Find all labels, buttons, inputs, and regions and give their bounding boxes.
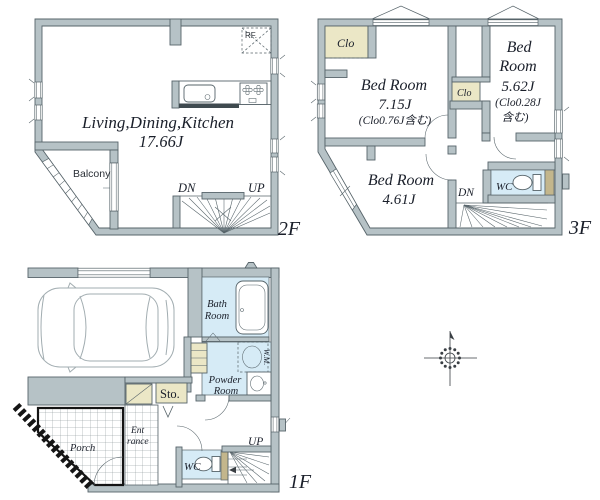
bath-room: Bath Room	[202, 277, 269, 342]
floorplan-sheet: RF.	[0, 0, 600, 500]
closet-b-label: Clo	[457, 88, 471, 99]
wc-label: WC	[184, 461, 201, 473]
wc-label: WC	[496, 181, 513, 193]
storage-label: Sto.	[160, 387, 180, 401]
wall-segment	[482, 133, 490, 141]
toilet-tank	[212, 457, 220, 472]
wall-segment	[488, 162, 555, 170]
wall-segment	[482, 101, 490, 133]
dn-label: DN	[457, 187, 475, 199]
floor-2f-plan: RF.	[29, 19, 301, 240]
side-mirror	[68, 283, 76, 288]
floor-1f-plan: Bath Room W.M. Powder Room Sto	[13, 263, 312, 494]
wall-segment	[110, 211, 118, 229]
wc-cabinet	[221, 451, 228, 480]
roof-gables	[371, 6, 540, 20]
north-arrow	[450, 331, 455, 340]
bedroom1-note: (Clo0.76J含む)	[359, 114, 432, 127]
wall-segment	[176, 447, 182, 487]
wall-segment	[448, 146, 456, 154]
wall-segment	[271, 268, 279, 492]
bath-label-l1: Bath	[207, 299, 227, 310]
wall-segment	[125, 377, 192, 383]
stair-landing	[202, 193, 244, 200]
bedroom2-note-l2: 含む)	[502, 111, 529, 124]
floor-3f-plan: Clo Clo	[311, 6, 592, 239]
bedroom1-area: 7.15J	[379, 97, 413, 113]
bedroom3-name: Bed Room	[368, 172, 434, 189]
up-label: UP	[248, 181, 265, 195]
closet-a-label: Clo	[337, 36, 354, 50]
floor-label-1f: 1F	[289, 471, 312, 493]
ldk-area: 17.66J	[139, 132, 184, 151]
bedroom2-area: 5.62J	[502, 79, 536, 95]
folding-door	[163, 406, 173, 417]
vent-hood	[245, 263, 257, 269]
kitchen-counter	[172, 81, 271, 108]
bathtub	[236, 281, 268, 334]
bedroom3-area: 4.61J	[383, 192, 417, 208]
wall-segment	[325, 138, 425, 146]
ldk-name: Living,Dining,Kitchen	[81, 113, 234, 132]
stove	[240, 83, 267, 105]
wall-segment	[173, 196, 180, 228]
compass	[424, 331, 477, 386]
rf-label: RF.	[245, 31, 257, 40]
balcony-label: Balcony	[73, 168, 111, 180]
wall-segment	[35, 142, 118, 150]
powder-room: W.M. Powder Room	[191, 342, 271, 420]
bedroom2-name-l2: Room	[498, 58, 536, 75]
wall-segment	[150, 268, 279, 278]
floorplan-drawing: RF.	[0, 0, 600, 500]
wall-segment	[452, 77, 490, 82]
entrance: Ent rance	[125, 405, 158, 485]
closet-a: Clo	[325, 26, 376, 58]
wc-cabinet	[545, 170, 554, 195]
vent-box	[563, 174, 570, 189]
wc-1f: WC	[176, 426, 228, 487]
wall-segment	[28, 268, 78, 278]
wall-segment	[229, 395, 271, 401]
floor-label-2f: 2F	[278, 218, 301, 240]
garage-door	[78, 268, 150, 277]
counter-edge	[179, 104, 239, 109]
porch-label: Porch	[69, 443, 95, 454]
wall-segment	[482, 26, 490, 77]
wall-segment	[516, 133, 555, 141]
wall-segment	[202, 337, 269, 342]
stairs-1f: UP	[222, 436, 271, 484]
balcony-window	[110, 163, 118, 211]
wall-segment	[110, 150, 118, 163]
toilet-bowl	[513, 175, 532, 189]
toilet-tank	[533, 175, 541, 191]
stair-treads	[228, 452, 269, 483]
entrance-label-l1: Ent	[130, 426, 145, 436]
wm-label: W.M.	[262, 349, 271, 366]
wall-segment	[367, 146, 375, 160]
entrance-label-l2: rance	[127, 437, 149, 447]
window	[271, 417, 290, 432]
wall-segment	[488, 195, 555, 203]
floor-label-3f: 3F	[568, 217, 592, 239]
closet-b: Clo	[452, 82, 480, 101]
up-label: UP	[248, 436, 263, 448]
wall-segment	[448, 180, 456, 228]
wall-segment	[368, 26, 376, 58]
dn-label: DN	[177, 181, 196, 195]
wall-segment	[196, 395, 205, 401]
wall-segment	[325, 70, 347, 78]
bedroom2-note-l1: (Clo0.28J	[495, 97, 542, 109]
side-mirror	[68, 367, 76, 372]
wall-segment	[28, 377, 125, 405]
stair-direction-arrow	[229, 467, 236, 473]
wall-segment	[172, 81, 179, 108]
vent-box	[280, 419, 286, 431]
bedroom2-name-l1: Bed	[507, 39, 533, 56]
bedroom1-name: Bed Room	[361, 77, 427, 94]
wall-segment	[188, 268, 202, 337]
car	[38, 283, 174, 372]
wall-segment	[170, 19, 181, 45]
storage: Sto.	[156, 383, 187, 403]
bath-label-l2: Room	[204, 311, 230, 322]
kitchen-sink	[184, 85, 215, 102]
door-arc	[205, 396, 229, 420]
powder-label-l1: Powder	[208, 375, 243, 386]
wall-segment	[222, 446, 271, 452]
